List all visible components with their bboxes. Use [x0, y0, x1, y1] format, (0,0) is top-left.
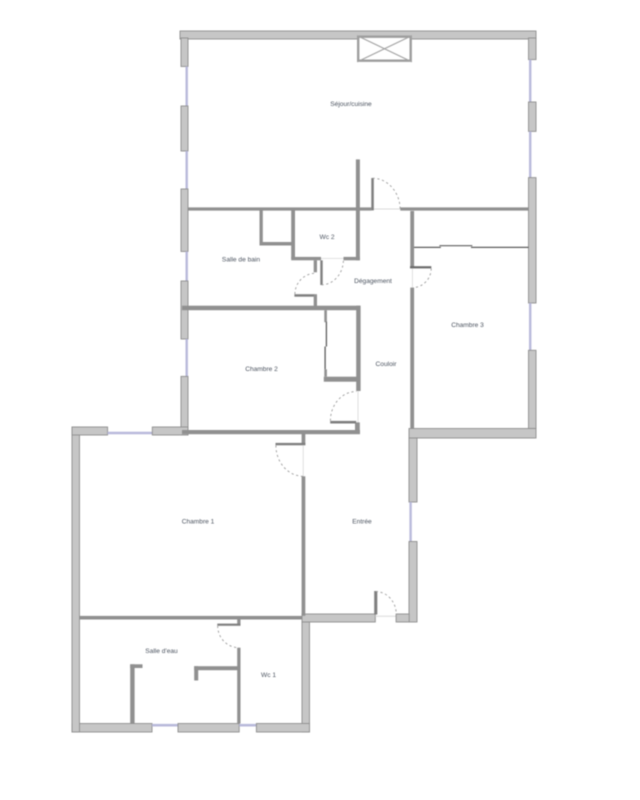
svg-text:Couloir: Couloir [376, 361, 398, 368]
svg-text:Séjour/cuisine: Séjour/cuisine [330, 101, 372, 108]
svg-text:Salle de bain: Salle de bain [222, 257, 260, 264]
svg-text:Chambre 1: Chambre 1 [182, 519, 215, 526]
svg-text:Chambre 2: Chambre 2 [245, 366, 278, 373]
svg-text:Chambre 3: Chambre 3 [451, 322, 484, 329]
svg-text:Wc 2: Wc 2 [319, 234, 334, 241]
svg-text:Entrée: Entrée [352, 519, 372, 526]
svg-text:Dégagement: Dégagement [354, 278, 392, 285]
svg-text:Wc 1: Wc 1 [261, 672, 276, 679]
svg-text:Salle d'eau: Salle d'eau [145, 648, 178, 655]
